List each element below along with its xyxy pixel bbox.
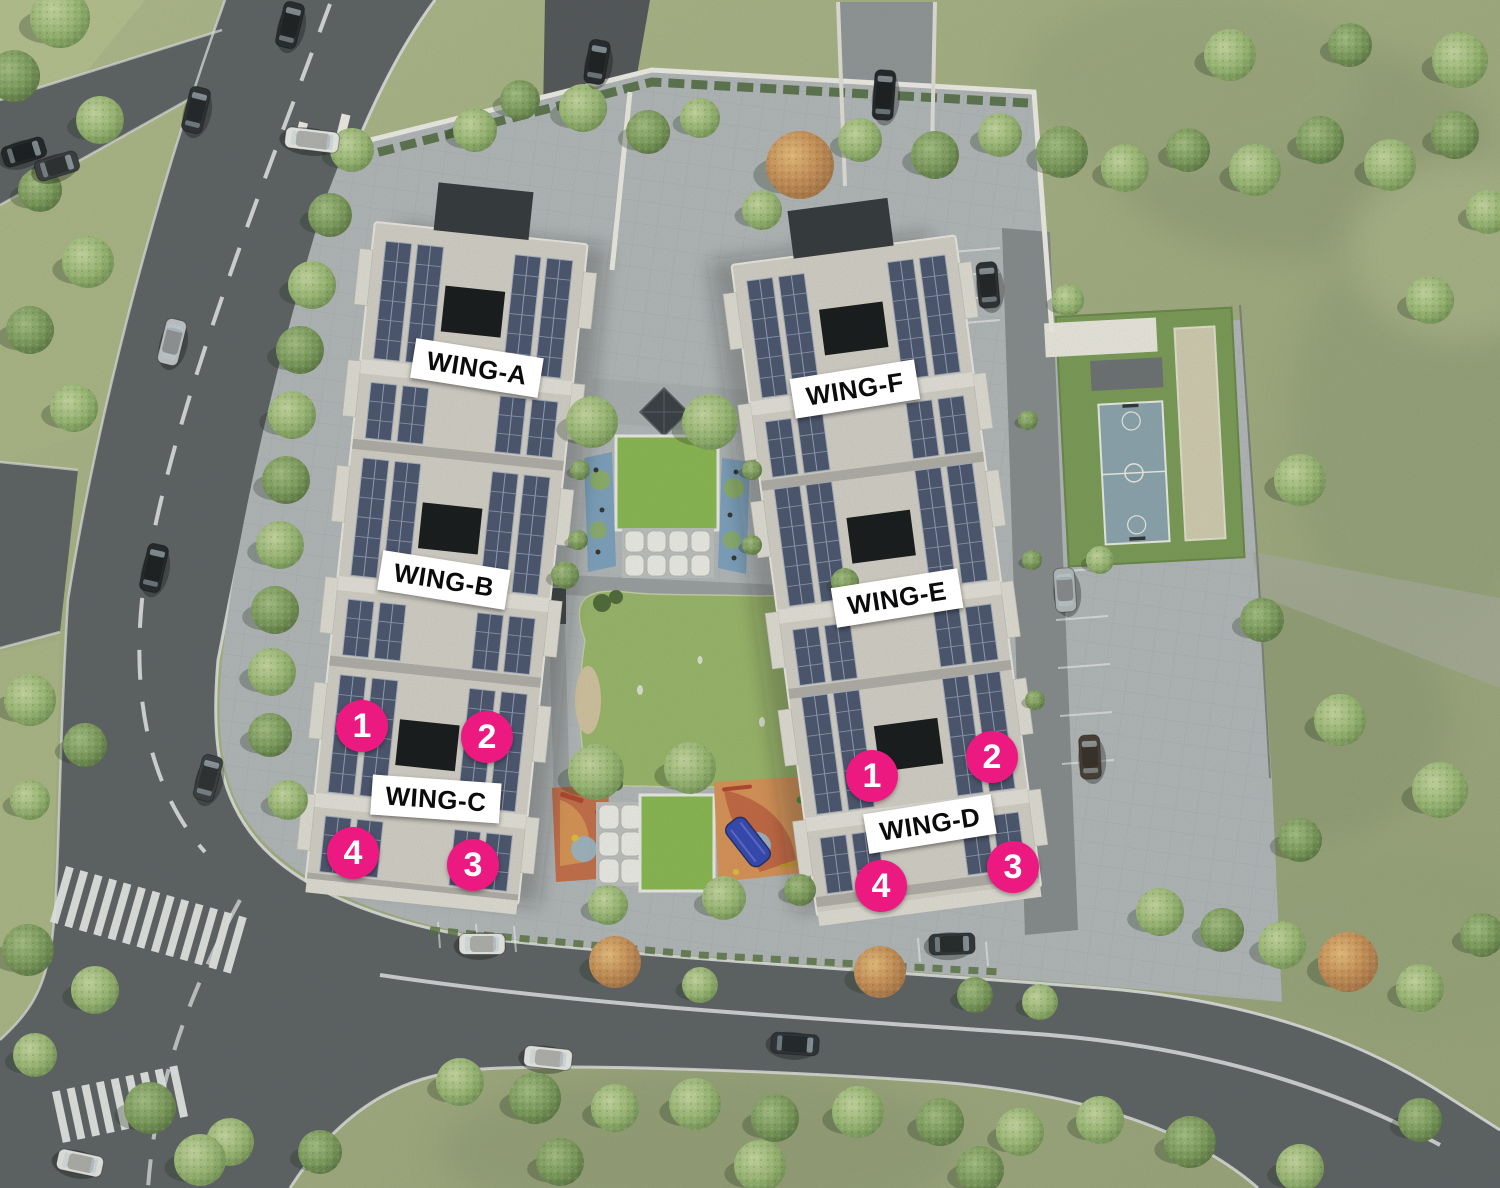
unit-marker-east-3[interactable]: 3 <box>987 841 1039 893</box>
site-plan-svg <box>0 0 1500 1188</box>
unit-marker-east-4[interactable]: 4 <box>855 860 907 912</box>
render-grain-texture <box>0 0 1500 1188</box>
unit-marker-west-3[interactable]: 3 <box>447 839 499 891</box>
unit-marker-west-2[interactable]: 2 <box>461 711 513 763</box>
site-plan-rendering: WING-AWING-BWING-CWING-DWING-EWING-F1243… <box>0 0 1500 1188</box>
unit-marker-west-1[interactable]: 1 <box>336 700 388 752</box>
unit-marker-west-4[interactable]: 4 <box>327 827 379 879</box>
unit-marker-east-1[interactable]: 1 <box>846 750 898 802</box>
unit-marker-east-2[interactable]: 2 <box>966 731 1018 783</box>
